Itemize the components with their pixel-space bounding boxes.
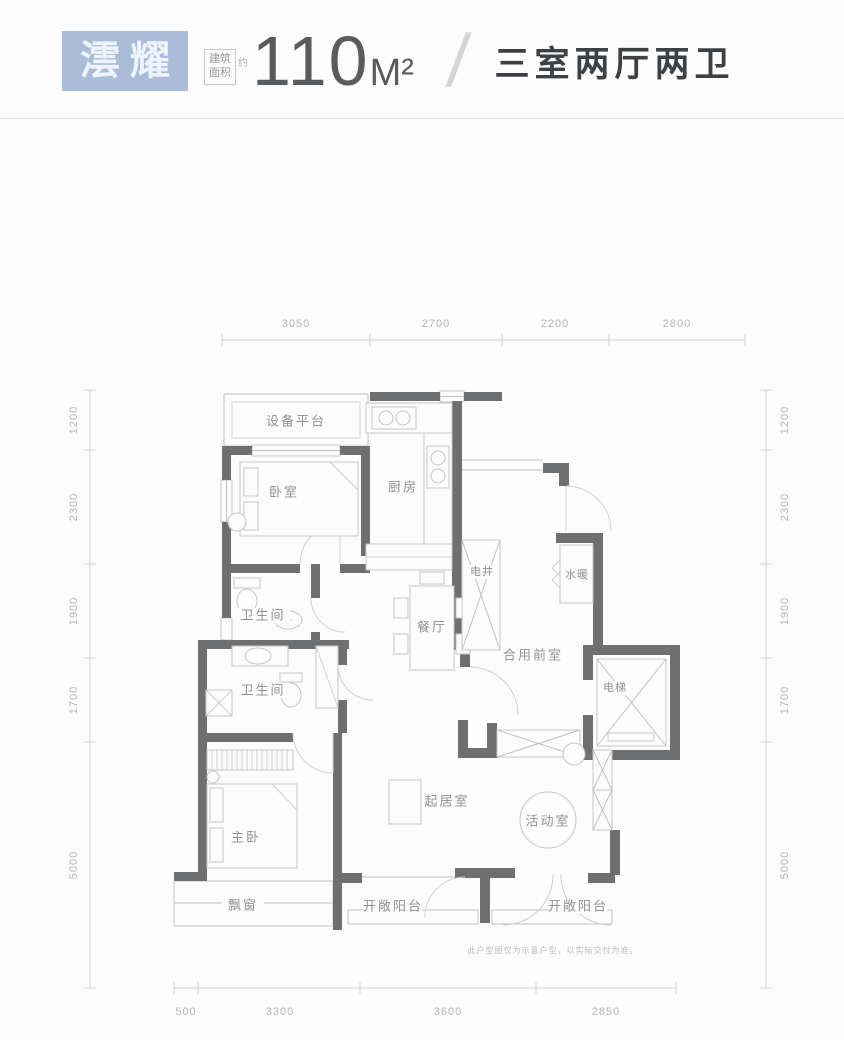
dim-left-3: 1900: [68, 597, 80, 625]
dim-bottom-3: 3600: [434, 1006, 462, 1018]
wardrobe-icon: [207, 750, 293, 770]
dim-bottom-4: 2850: [592, 1006, 620, 1018]
dim-right-3: 1900: [779, 597, 791, 625]
shower-icon: [316, 646, 338, 708]
room-label-bathroom-1: 卫生间: [240, 607, 285, 622]
bed-icon: [207, 771, 297, 868]
utility-shaft-box: [462, 540, 500, 650]
separator-slash: /: [445, 31, 472, 90]
header-divider: [0, 118, 844, 119]
dim-bottom-2: 3300: [266, 1006, 294, 1018]
room-label-kitchen: 厨房: [388, 479, 418, 494]
dim-top-1: 3050: [282, 318, 310, 330]
room-label-bay-window: 飘窗: [228, 897, 258, 912]
area-approx: 约: [238, 54, 248, 69]
dim-top-3: 2200: [541, 318, 569, 330]
room-label-balcony-right: 开敞阳台: [548, 898, 608, 913]
room-label-utility-shaft: 电井: [470, 564, 494, 578]
dim-top-4: 2800: [663, 318, 691, 330]
area-group: 建筑 面积 约 110M²: [204, 30, 414, 93]
washer-icon: [206, 690, 232, 716]
dim-top-2: 2700: [422, 318, 450, 330]
dim-left-1: 1200: [68, 406, 80, 434]
header: 澐耀 建筑 面积 约 110M² / 三室两厅两卫: [62, 26, 804, 96]
room-label-bedroom: 卧室: [269, 484, 299, 499]
dimension-left: 1200 2300 1900 1700 5000: [68, 390, 96, 988]
room-label-equipment-platform: 设备平台: [266, 413, 326, 428]
room-label-balcony-left: 开敞阳台: [363, 898, 423, 913]
room-label-bathroom-2: 卫生间: [240, 682, 285, 697]
disclaimer-text: 此户型图仅为示意户型，以实际交付为准。: [468, 945, 639, 955]
room-label-front-room: 合用前室: [503, 647, 563, 662]
dim-bottom-1: 500: [175, 1006, 196, 1018]
room-label-activity-room: 活动室: [525, 813, 570, 828]
room-label-dining: 餐厅: [417, 619, 447, 634]
area-value: 110M²: [252, 30, 414, 93]
area-label-bottom: 面积: [209, 67, 231, 81]
dim-left-4: 1700: [68, 686, 80, 714]
closet-strip: [593, 750, 612, 830]
area-label-box: 建筑 面积: [204, 49, 236, 85]
dimension-bottom: 500 3300 3600 2850: [174, 982, 676, 1018]
dimension-top: 3050 2700 2200 2800: [222, 318, 745, 346]
area-label-top: 建筑: [209, 53, 231, 67]
room-label-plumbing: 水暖: [565, 568, 589, 581]
dim-right-4: 1700: [779, 686, 791, 714]
room-label-living-room: 起居室: [424, 793, 469, 808]
dim-right-5: 5000: [779, 851, 791, 879]
vanity-icon: [232, 646, 288, 666]
brand-badge: 澐耀: [62, 31, 188, 91]
area-unit: M²: [370, 52, 414, 94]
dim-right-1: 1200: [779, 406, 791, 434]
room-label-elevator: 电梯: [603, 681, 627, 694]
dim-left-5: 5000: [68, 851, 80, 879]
dim-left-2: 2300: [68, 493, 80, 521]
layout-description: 三室两厅两卫: [494, 36, 734, 87]
room-label-master-bedroom: 主卧: [231, 829, 261, 844]
floorplan-drawing: 3050 2700 2200 2800 1200 2300 1900 1700 …: [0, 120, 844, 1040]
dim-right-2: 2300: [779, 493, 791, 521]
elevator-box: [597, 659, 666, 746]
dimension-right: 1200 2300 1900 1700 5000: [760, 390, 791, 988]
